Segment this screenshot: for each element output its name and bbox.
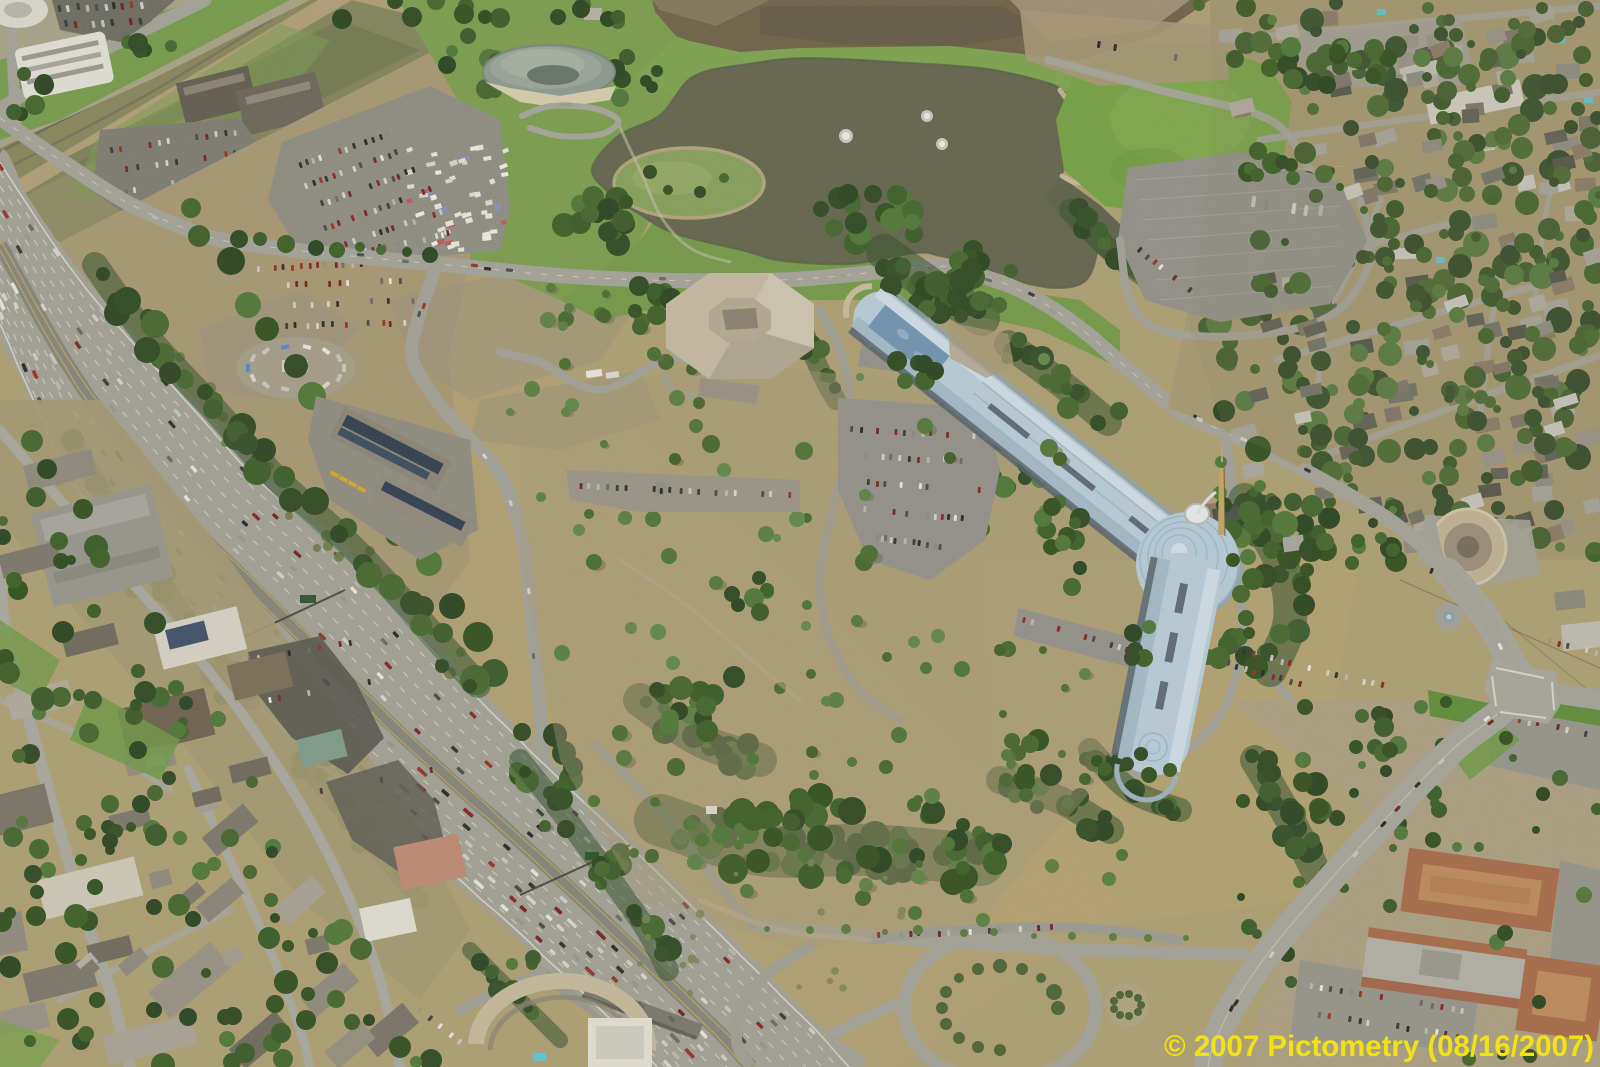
svg-text:© 2007 Pictometry (08/16/2007): © 2007 Pictometry (08/16/2007) xyxy=(1164,1030,1594,1063)
